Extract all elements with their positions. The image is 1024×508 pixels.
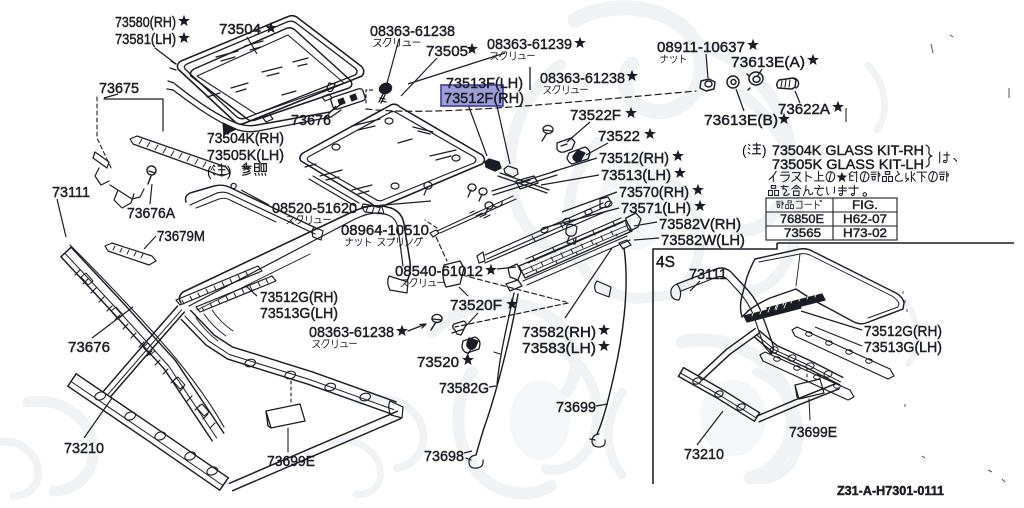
svg-text:08363-61238: 08363-61238 bbox=[309, 325, 394, 341]
svg-text:73504K(RH): 73504K(RH) bbox=[207, 131, 284, 147]
svg-text:73512F(RH): 73512F(RH) bbox=[444, 91, 524, 107]
svg-text:08363-61238: 08363-61238 bbox=[370, 24, 455, 40]
svg-text:73613E(B): 73613E(B) bbox=[704, 113, 778, 129]
svg-text:73111: 73111 bbox=[52, 185, 90, 201]
svg-text:73699: 73699 bbox=[556, 400, 596, 416]
svg-text:73504K GLASS KIT-RH: 73504K GLASS KIT-RH bbox=[772, 143, 924, 158]
svg-text:73513F(LH): 73513F(LH) bbox=[446, 76, 523, 92]
svg-text:73582(RH): 73582(RH) bbox=[522, 325, 596, 341]
svg-text:73570(RH): 73570(RH) bbox=[619, 185, 689, 201]
svg-text:08911-10637: 08911-10637 bbox=[657, 40, 745, 56]
svg-text:73580(RH): 73580(RH) bbox=[115, 15, 176, 31]
svg-text:73513G(LH): 73513G(LH) bbox=[864, 340, 942, 356]
svg-text:73613E(A): 73613E(A) bbox=[731, 55, 805, 71]
svg-text:73111: 73111 bbox=[689, 267, 727, 283]
svg-text:08540-61012: 08540-61012 bbox=[395, 264, 483, 280]
svg-text:73505: 73505 bbox=[426, 44, 468, 60]
svg-text:73522: 73522 bbox=[598, 129, 640, 145]
svg-text:73622A: 73622A bbox=[778, 102, 830, 118]
svg-text:73512G(RH): 73512G(RH) bbox=[864, 324, 942, 340]
svg-text:73582W(LH): 73582W(LH) bbox=[661, 233, 745, 249]
svg-text:08363-61238: 08363-61238 bbox=[540, 71, 625, 87]
svg-text:73505K GLASS KIT-LH: 73505K GLASS KIT-LH bbox=[772, 157, 924, 172]
svg-text:73505K(LH): 73505K(LH) bbox=[207, 148, 284, 164]
svg-text:73675: 73675 bbox=[99, 81, 139, 97]
svg-text:FIG.: FIG. bbox=[852, 200, 878, 212]
svg-text:73676A: 73676A bbox=[127, 206, 175, 222]
svg-text:73676: 73676 bbox=[291, 113, 331, 129]
svg-text:(: ( bbox=[742, 143, 747, 158]
svg-text:73698: 73698 bbox=[424, 449, 464, 465]
svg-text:73679M: 73679M bbox=[157, 229, 205, 245]
svg-text:08964-10510: 08964-10510 bbox=[341, 223, 429, 239]
svg-text:73583(LH): 73583(LH) bbox=[522, 341, 596, 357]
svg-text:76850E: 76850E bbox=[780, 212, 824, 226]
svg-text:): ) bbox=[227, 164, 232, 179]
svg-text:73571(LH): 73571(LH) bbox=[621, 201, 691, 217]
svg-text:73699E: 73699E bbox=[267, 454, 315, 470]
svg-text:(: ( bbox=[207, 164, 212, 179]
svg-text:Z31-A-H7301-0111: Z31-A-H7301-0111 bbox=[837, 484, 944, 498]
svg-text:73513(LH): 73513(LH) bbox=[601, 168, 671, 184]
svg-text:73210: 73210 bbox=[64, 441, 104, 457]
svg-text:H73-02: H73-02 bbox=[843, 226, 887, 240]
svg-text:73676: 73676 bbox=[68, 340, 110, 356]
svg-text:73522F: 73522F bbox=[570, 108, 621, 124]
svg-text:H62-07: H62-07 bbox=[843, 212, 887, 226]
svg-text:73512G(RH): 73512G(RH) bbox=[260, 290, 338, 306]
svg-text:73512(RH): 73512(RH) bbox=[599, 151, 669, 167]
svg-text:73582G: 73582G bbox=[439, 381, 489, 397]
svg-text:73565: 73565 bbox=[784, 226, 821, 240]
svg-text:73210: 73210 bbox=[684, 447, 724, 463]
svg-text:08363-61239: 08363-61239 bbox=[487, 37, 572, 53]
svg-text:4S: 4S bbox=[656, 254, 675, 271]
svg-text:73582V(RH): 73582V(RH) bbox=[659, 217, 741, 233]
svg-text:73513G(LH): 73513G(LH) bbox=[260, 306, 338, 322]
svg-text:73699E: 73699E bbox=[789, 425, 837, 441]
svg-text:08520-51620: 08520-51620 bbox=[272, 201, 357, 217]
svg-text:73581(LH): 73581(LH) bbox=[115, 32, 176, 48]
svg-text:73520F: 73520F bbox=[450, 298, 502, 314]
svg-text:73504: 73504 bbox=[219, 22, 261, 38]
svg-text:73520: 73520 bbox=[417, 355, 459, 371]
svg-text:): ) bbox=[762, 143, 767, 158]
